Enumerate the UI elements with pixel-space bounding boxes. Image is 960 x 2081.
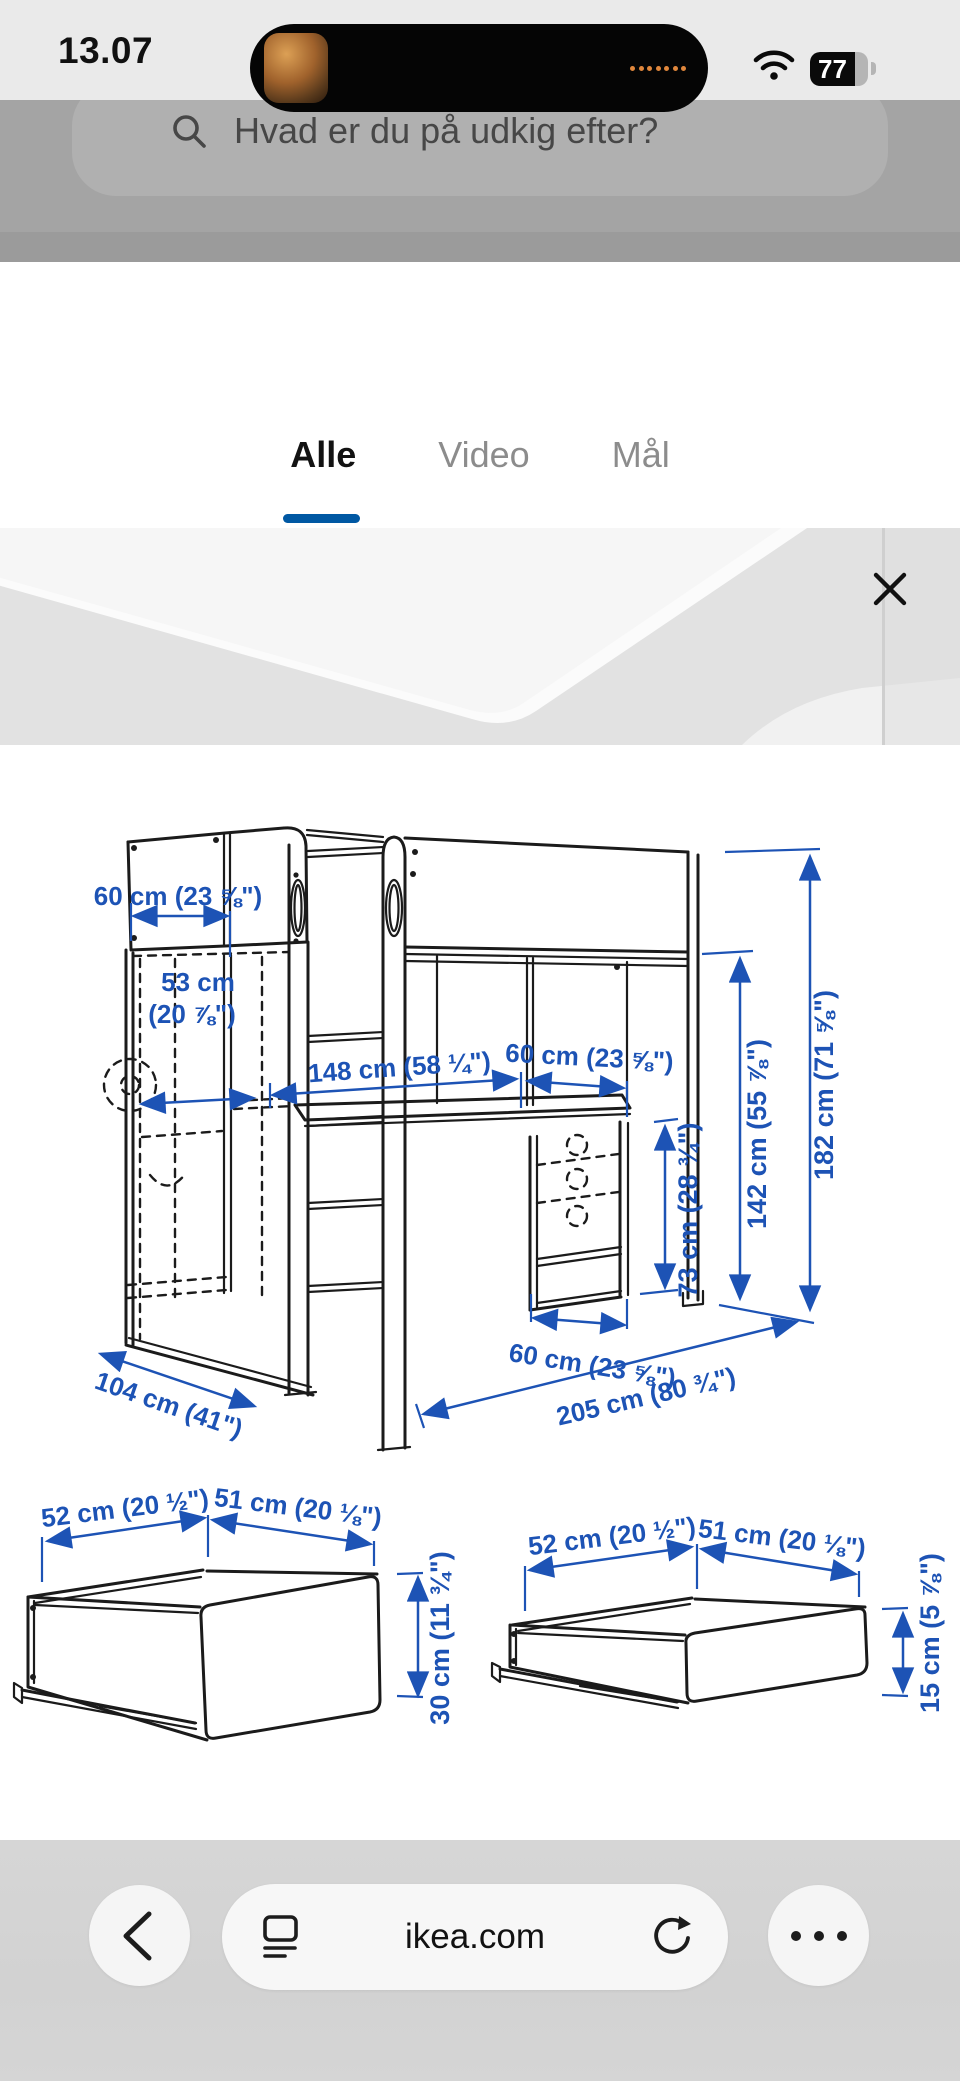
back-button[interactable] — [89, 1885, 190, 1986]
svg-text:53 cm: 53 cm — [161, 967, 235, 997]
dimension-drawer-large-height: 30 cm (11 ¾") — [397, 1551, 455, 1724]
close-button[interactable] — [866, 565, 914, 613]
search-icon — [170, 112, 208, 150]
more-dot — [837, 1931, 847, 1941]
dimension-height-under-bed: 142 cm (55 ⅞") — [702, 951, 772, 1298]
close-icon — [866, 565, 914, 613]
media-viewer-sheet: Alle Video Mål — [0, 262, 960, 528]
more-button[interactable] — [768, 1885, 869, 1986]
dimension-diagram-image[interactable]: 60 cm (23 ⅝") 53 cm (20 ⅞") 148 cm (58 ¼… — [0, 745, 960, 1840]
dynamic-island[interactable] — [250, 24, 708, 112]
carousel-photo-fragment[interactable] — [0, 528, 960, 745]
loft-bed-diagram: 60 cm (23 ⅝") 53 cm (20 ⅞") 148 cm (58 ¼… — [0, 745, 960, 1840]
more-dot — [791, 1931, 801, 1941]
svg-text:182 cm (71 ⅝"): 182 cm (71 ⅝") — [809, 990, 839, 1180]
audio-activity-dots-icon — [630, 66, 686, 71]
dimension-drawer-large-width-b: 51 cm (20 ⅛") — [213, 1482, 384, 1566]
dimension-drawer-large-width-a: 52 cm (20 ½") — [39, 1483, 210, 1582]
svg-text:60 cm (23 ⅝"): 60 cm (23 ⅝") — [505, 1038, 675, 1077]
battery-icon: 77 — [810, 52, 868, 86]
tab-alle[interactable]: Alle — [288, 434, 358, 476]
svg-text:73 cm (28 ¾"): 73 cm (28 ¾") — [673, 1123, 703, 1298]
tab-maal[interactable]: Mål — [610, 434, 672, 476]
safari-bottom-toolbar: ikea.com — [0, 1840, 960, 2081]
svg-text:52 cm (20 ½"): 52 cm (20 ½") — [39, 1483, 210, 1533]
svg-text:60 cm (23 ⅝"): 60 cm (23 ⅝") — [94, 881, 262, 911]
furniture-photo — [0, 528, 960, 745]
address-bar[interactable]: ikea.com — [222, 1884, 728, 1990]
drawer-large-drawing — [14, 1570, 380, 1740]
svg-text:15 cm (5 ⅞"): 15 cm (5 ⅞") — [915, 1553, 945, 1713]
reload-icon[interactable] — [648, 1914, 694, 1960]
status-bar: 13.07 77 — [0, 0, 960, 100]
dimension-inner-width: 53 cm (20 ⅞") — [142, 967, 253, 1104]
active-tab-underline — [283, 514, 360, 523]
dimension-drawer-small-width-a: 52 cm (20 ½") — [525, 1511, 697, 1611]
svg-text:(20 ⅞"): (20 ⅞") — [148, 999, 235, 1029]
dimension-desk-height: 73 cm (28 ¾") — [640, 1119, 703, 1297]
more-dot — [814, 1931, 824, 1941]
drawer-small-drawing — [492, 1598, 867, 1708]
svg-text:51 cm (20 ⅛"): 51 cm (20 ⅛") — [697, 1513, 868, 1563]
tab-video[interactable]: Video — [436, 434, 531, 476]
chevron-left-icon — [89, 1885, 190, 1986]
svg-text:142 cm (55 ⅞"): 142 cm (55 ⅞") — [742, 1039, 772, 1229]
search-placeholder: Hvad er du på udkig efter? — [234, 110, 658, 152]
dimension-total-height: 182 cm (71 ⅝") — [719, 849, 839, 1323]
clock: 13.07 — [58, 30, 153, 72]
battery-cap — [871, 62, 876, 75]
dimension-drawer-small-height: 15 cm (5 ⅞") — [882, 1553, 945, 1713]
picture-in-picture-thumbnail[interactable] — [264, 33, 328, 103]
svg-text:30 cm (11 ¾"): 30 cm (11 ¾") — [425, 1551, 455, 1724]
desk-drawer-unit — [530, 1122, 628, 1310]
svg-text:52 cm (20 ½"): 52 cm (20 ½") — [526, 1511, 697, 1561]
battery-percent: 77 — [810, 52, 855, 86]
dimension-side-depth: 104 cm (41") — [91, 1354, 254, 1444]
iphone-screen: 13.07 77 Hvad er du på udkig efter? — [0, 0, 960, 2081]
wifi-icon — [752, 48, 796, 82]
dimmed-content-edge — [0, 232, 960, 262]
dimension-desk-width: 60 cm (23 ⅝") — [505, 1038, 675, 1117]
media-tabs: Alle Video Mål — [0, 434, 960, 476]
dimmed-page-background: Hvad er du på udkig efter? — [0, 100, 960, 262]
dimension-drawer-small-width-b: 51 cm (20 ⅛") — [697, 1513, 868, 1597]
